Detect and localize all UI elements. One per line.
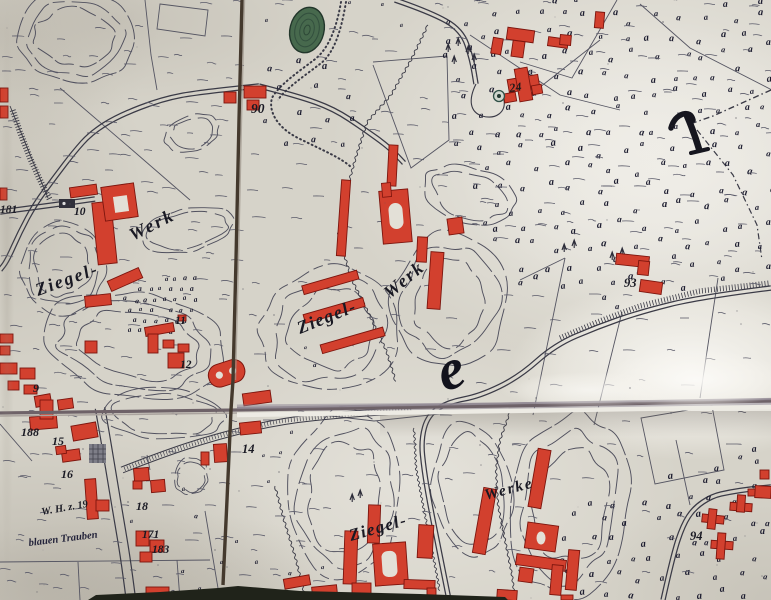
svg-text:a: a <box>652 90 657 99</box>
svg-text:a: a <box>584 91 589 101</box>
svg-text:14: 14 <box>242 442 255 456</box>
svg-text:a: a <box>580 8 586 19</box>
svg-text:a: a <box>705 238 710 247</box>
svg-text:a: a <box>549 177 555 188</box>
svg-text:a: a <box>712 139 717 150</box>
svg-text:a: a <box>606 128 611 138</box>
svg-text:a: a <box>721 45 726 54</box>
svg-text:a: a <box>578 66 584 77</box>
svg-text:a: a <box>703 475 708 486</box>
svg-text:a: a <box>755 203 760 212</box>
svg-text:a: a <box>589 569 595 580</box>
svg-text:a: a <box>706 157 712 168</box>
svg-text:a: a <box>640 139 644 148</box>
svg-text:a: a <box>296 55 302 66</box>
svg-text:a: a <box>723 225 729 235</box>
svg-text:a: a <box>664 186 669 197</box>
svg-text:a: a <box>565 157 570 168</box>
svg-text:a: a <box>601 238 607 249</box>
svg-text:a: a <box>570 226 576 237</box>
svg-text:a: a <box>676 195 681 206</box>
svg-text:a: a <box>498 180 503 190</box>
svg-text:a: a <box>277 82 282 91</box>
svg-text:a: a <box>721 29 726 40</box>
svg-text:90: 90 <box>251 101 265 116</box>
svg-text:94: 94 <box>690 529 703 543</box>
svg-text:a: a <box>669 33 675 44</box>
svg-text:a: a <box>311 135 317 145</box>
svg-text:a: a <box>714 463 719 474</box>
svg-text:11: 11 <box>175 315 186 327</box>
svg-text:a: a <box>554 124 558 133</box>
svg-text:a: a <box>451 111 457 122</box>
svg-text:a: a <box>756 120 760 129</box>
svg-text:a: a <box>673 83 679 94</box>
svg-text:a: a <box>597 220 603 231</box>
svg-text:a: a <box>626 34 630 43</box>
svg-text:a: a <box>748 44 753 55</box>
svg-text:a: a <box>515 235 520 246</box>
svg-text:a: a <box>533 271 539 282</box>
svg-text:a: a <box>494 26 499 37</box>
svg-text:a: a <box>263 116 267 125</box>
svg-text:a: a <box>554 246 559 256</box>
svg-text:a: a <box>735 128 739 137</box>
svg-text:a: a <box>725 158 730 169</box>
svg-text:18: 18 <box>136 499 148 513</box>
svg-text:a: a <box>493 234 498 243</box>
svg-text:a: a <box>472 181 478 192</box>
svg-text:a: a <box>609 532 615 543</box>
svg-text:a: a <box>674 74 678 83</box>
svg-text:a: a <box>169 305 173 314</box>
svg-text:a: a <box>734 239 740 250</box>
svg-text:a: a <box>766 217 771 228</box>
svg-text:a: a <box>138 284 142 293</box>
svg-text:a: a <box>604 198 610 209</box>
svg-text:a: a <box>749 87 754 96</box>
svg-text:a: a <box>574 0 578 4</box>
svg-text:a: a <box>667 471 673 482</box>
svg-text:a: a <box>728 85 733 95</box>
svg-text:a: a <box>745 102 750 113</box>
svg-text:9: 9 <box>33 381 39 395</box>
svg-text:a: a <box>497 67 502 77</box>
svg-text:a: a <box>520 110 525 119</box>
svg-text:a: a <box>675 226 679 235</box>
svg-text:a: a <box>297 107 302 118</box>
svg-text:a: a <box>279 450 282 456</box>
svg-text:a: a <box>642 223 647 233</box>
svg-text:a: a <box>670 144 675 154</box>
svg-text:a: a <box>616 101 620 110</box>
svg-text:a: a <box>591 107 597 117</box>
svg-text:a: a <box>766 37 771 48</box>
svg-text:a: a <box>265 17 269 24</box>
svg-text:a: a <box>497 148 502 157</box>
svg-text:16: 16 <box>61 467 73 481</box>
svg-text:a: a <box>682 161 687 170</box>
svg-text:a: a <box>666 501 672 512</box>
svg-text:183: 183 <box>152 544 170 556</box>
svg-text:a: a <box>642 497 648 508</box>
svg-text:a: a <box>485 163 489 172</box>
svg-text:a: a <box>676 593 680 600</box>
svg-text:a: a <box>165 315 169 324</box>
svg-text:a: a <box>704 201 710 212</box>
svg-text:a: a <box>716 106 720 115</box>
svg-text:a: a <box>693 73 698 82</box>
svg-text:a: a <box>554 71 559 81</box>
svg-text:a: a <box>738 142 743 152</box>
svg-text:a: a <box>580 198 586 208</box>
svg-text:171: 171 <box>142 529 159 541</box>
svg-text:a: a <box>740 591 746 600</box>
svg-text:a: a <box>267 479 270 485</box>
svg-text:a: a <box>262 453 265 459</box>
svg-text:a: a <box>689 492 693 501</box>
svg-text:a: a <box>193 273 197 282</box>
svg-text:a: a <box>735 264 740 274</box>
svg-text:a: a <box>758 7 763 18</box>
svg-text:a: a <box>542 51 548 62</box>
svg-text:a: a <box>483 218 488 227</box>
svg-text:a: a <box>758 242 763 251</box>
svg-text:a: a <box>588 243 593 253</box>
svg-text:a: a <box>519 265 524 275</box>
svg-text:a: a <box>577 143 583 154</box>
svg-text:a: a <box>469 128 474 138</box>
svg-text:a: a <box>381 2 385 8</box>
svg-text:a: a <box>715 476 721 487</box>
svg-text:10: 10 <box>74 206 86 218</box>
svg-text:a: a <box>654 9 658 18</box>
svg-text:a: a <box>545 264 550 275</box>
svg-text:a: a <box>586 127 592 138</box>
svg-text:15: 15 <box>52 434 64 448</box>
svg-text:a: a <box>758 0 763 7</box>
svg-text:a: a <box>477 142 482 153</box>
svg-text:a: a <box>698 105 703 115</box>
svg-text:12: 12 <box>180 359 192 371</box>
svg-text:a: a <box>481 32 486 41</box>
svg-text:a: a <box>651 75 657 86</box>
svg-text:a: a <box>685 567 691 578</box>
svg-text:188: 188 <box>21 425 39 439</box>
svg-text:a: a <box>710 126 715 137</box>
svg-text:a: a <box>183 273 187 282</box>
svg-text:a: a <box>717 257 722 266</box>
svg-text:a: a <box>521 223 526 233</box>
svg-text:a: a <box>624 145 629 156</box>
svg-text:a: a <box>563 7 567 16</box>
svg-text:a: a <box>350 114 356 124</box>
svg-text:a: a <box>567 87 572 98</box>
svg-text:a: a <box>128 306 132 314</box>
svg-text:a: a <box>613 7 618 18</box>
svg-text:a: a <box>766 73 771 85</box>
svg-text:a: a <box>723 0 729 10</box>
svg-text:a: a <box>530 236 534 245</box>
svg-text:a: a <box>322 61 327 72</box>
svg-text:93: 93 <box>624 276 637 290</box>
svg-text:a: a <box>464 19 468 28</box>
svg-text:a: a <box>606 165 611 175</box>
svg-text:a: a <box>751 519 756 529</box>
svg-text:24: 24 <box>507 79 522 95</box>
svg-text:a: a <box>662 199 667 210</box>
svg-text:a: a <box>602 292 607 302</box>
svg-text:a: a <box>506 158 511 168</box>
svg-text:a: a <box>566 263 572 274</box>
svg-text:a: a <box>348 0 351 6</box>
svg-text:a: a <box>766 261 771 272</box>
svg-text:a: a <box>454 138 459 148</box>
svg-text:a: a <box>547 24 552 34</box>
svg-text:a: a <box>690 189 695 199</box>
svg-text:a: a <box>190 284 195 293</box>
svg-text:a: a <box>696 591 702 600</box>
svg-text:a: a <box>321 564 324 571</box>
svg-text:a: a <box>538 206 542 215</box>
svg-text:a: a <box>143 318 147 325</box>
svg-text:a: a <box>760 526 765 537</box>
